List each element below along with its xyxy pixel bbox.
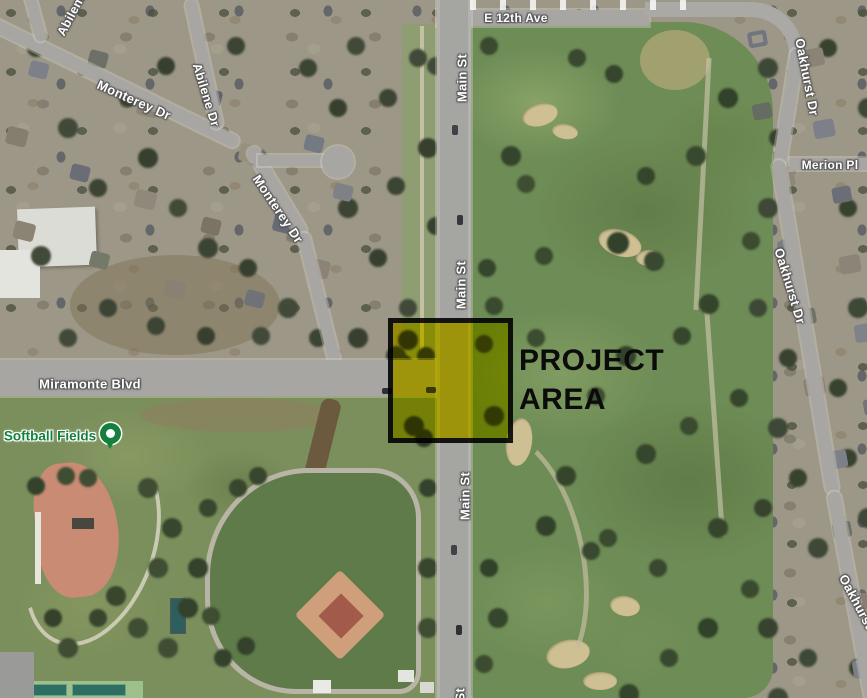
- dugout: [72, 518, 94, 529]
- court-2: [72, 684, 126, 696]
- park-building-3: [420, 682, 434, 693]
- tree-cluster: [0, 0, 12, 12]
- park-poi-icon[interactable]: [100, 423, 121, 444]
- project-area-annotation: PROJECT AREA: [519, 341, 664, 419]
- parking-corner: [0, 652, 34, 698]
- dirt-bank: [140, 398, 340, 432]
- street-label-main-st: Main St: [458, 472, 473, 520]
- dirt-field: [70, 255, 280, 355]
- building-wing: [0, 250, 40, 298]
- project-area-line2: AREA: [519, 380, 664, 419]
- project-area-highlight: [388, 318, 513, 443]
- road-e12th-curve: [645, 2, 803, 66]
- street-label-main-st: Main St: [454, 261, 469, 309]
- car: [452, 125, 458, 135]
- street-label-e12th-ave: E 12th Ave: [484, 11, 547, 25]
- baseball-outfield: [205, 468, 421, 694]
- parking-stripes: [470, 0, 695, 10]
- walking-path: [420, 26, 424, 358]
- street-label-main-st: Main St: [455, 54, 470, 102]
- bleachers: [35, 512, 41, 584]
- project-area-line1: PROJECT: [519, 341, 664, 380]
- street-label-main-st: Main St: [453, 688, 468, 698]
- car: [457, 215, 463, 225]
- car: [451, 545, 457, 555]
- park-building-1: [313, 680, 331, 693]
- park-building-2: [398, 670, 414, 682]
- street-label-miramonte-blvd: Miramonte Blvd: [39, 377, 141, 392]
- poi-label-softball-fields: Softball Fields: [4, 429, 96, 444]
- sand-bunker: [583, 672, 617, 690]
- street-label-merion-pl: Merion Pl: [802, 158, 859, 172]
- sand-bunker: [636, 250, 662, 266]
- map-canvas[interactable]: E 12th Ave Main St Main St Main St Main …: [0, 0, 867, 698]
- car: [456, 625, 462, 635]
- shed: [170, 598, 186, 634]
- culdesac-bulb: [322, 146, 354, 178]
